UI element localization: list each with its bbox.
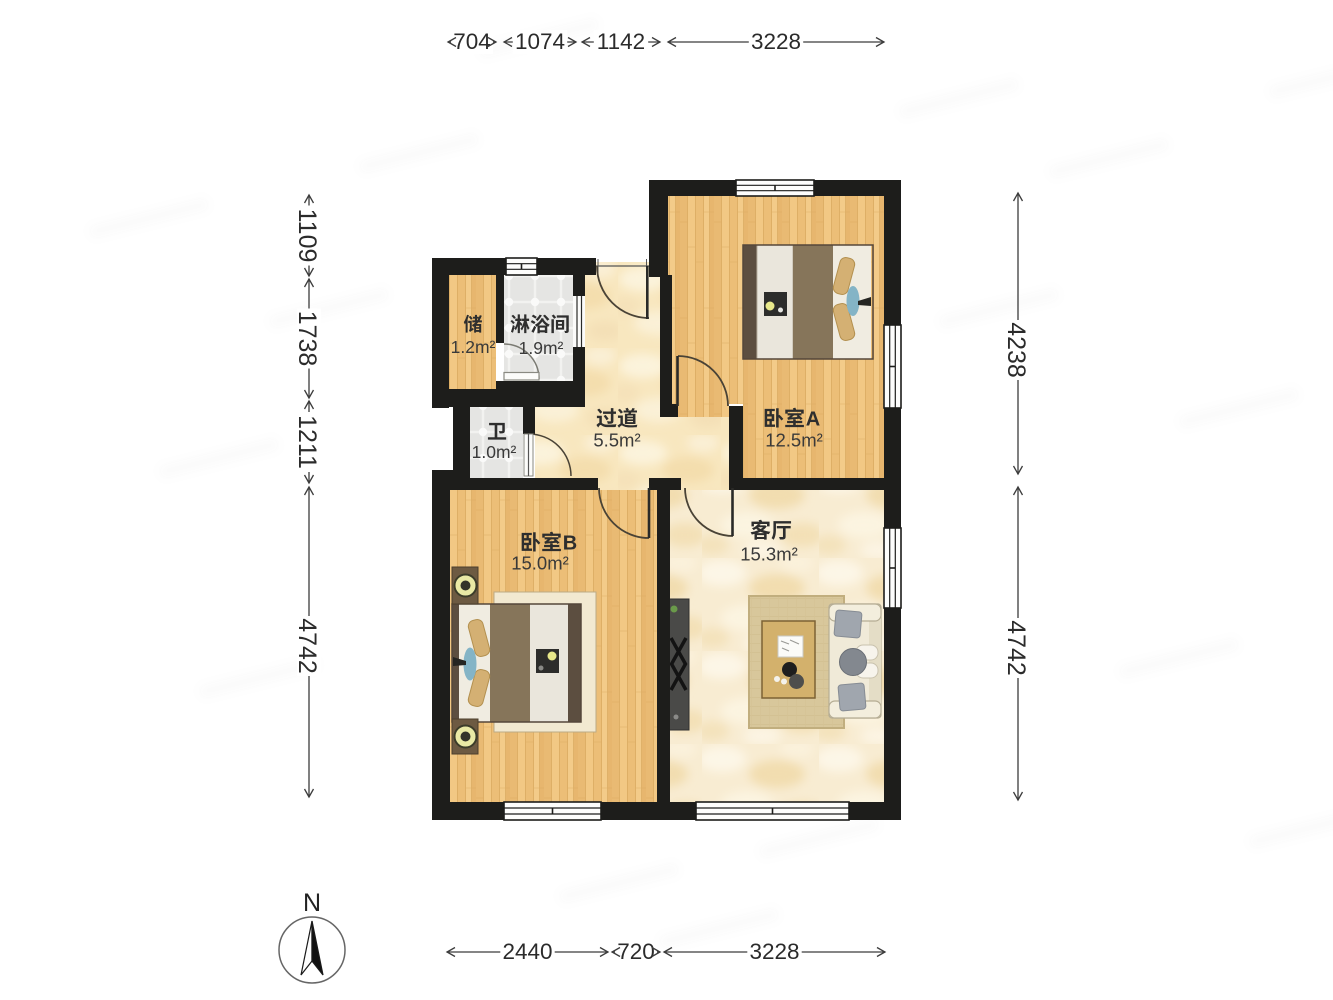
svg-text:1.0m²: 1.0m² <box>472 442 517 462</box>
svg-text:3228: 3228 <box>751 29 801 54</box>
svg-text:2440: 2440 <box>502 939 552 964</box>
svg-text:704: 704 <box>453 29 491 54</box>
svg-text:B: B <box>563 533 577 555</box>
svg-text:720: 720 <box>617 939 655 964</box>
svg-text:1738: 1738 <box>293 311 321 367</box>
svg-text:N: N <box>303 889 321 917</box>
svg-text:1142: 1142 <box>597 29 645 54</box>
svg-text:1211: 1211 <box>293 415 321 469</box>
svg-text:1109: 1109 <box>293 209 321 263</box>
svg-text:4742: 4742 <box>293 618 321 674</box>
svg-text:1.9m²: 1.9m² <box>519 338 564 358</box>
svg-text:1074: 1074 <box>515 29 565 54</box>
svg-text:4742: 4742 <box>1002 620 1030 676</box>
svg-text:3228: 3228 <box>749 939 799 964</box>
svg-text:5.5m²: 5.5m² <box>593 430 640 451</box>
svg-text:1.2m²: 1.2m² <box>451 337 496 357</box>
svg-text:A: A <box>806 409 820 431</box>
svg-text:4238: 4238 <box>1002 322 1030 378</box>
svg-text:15.3m²: 15.3m² <box>740 544 798 565</box>
svg-text:12.5m²: 12.5m² <box>765 430 823 451</box>
svg-text:15.0m²: 15.0m² <box>511 553 569 574</box>
